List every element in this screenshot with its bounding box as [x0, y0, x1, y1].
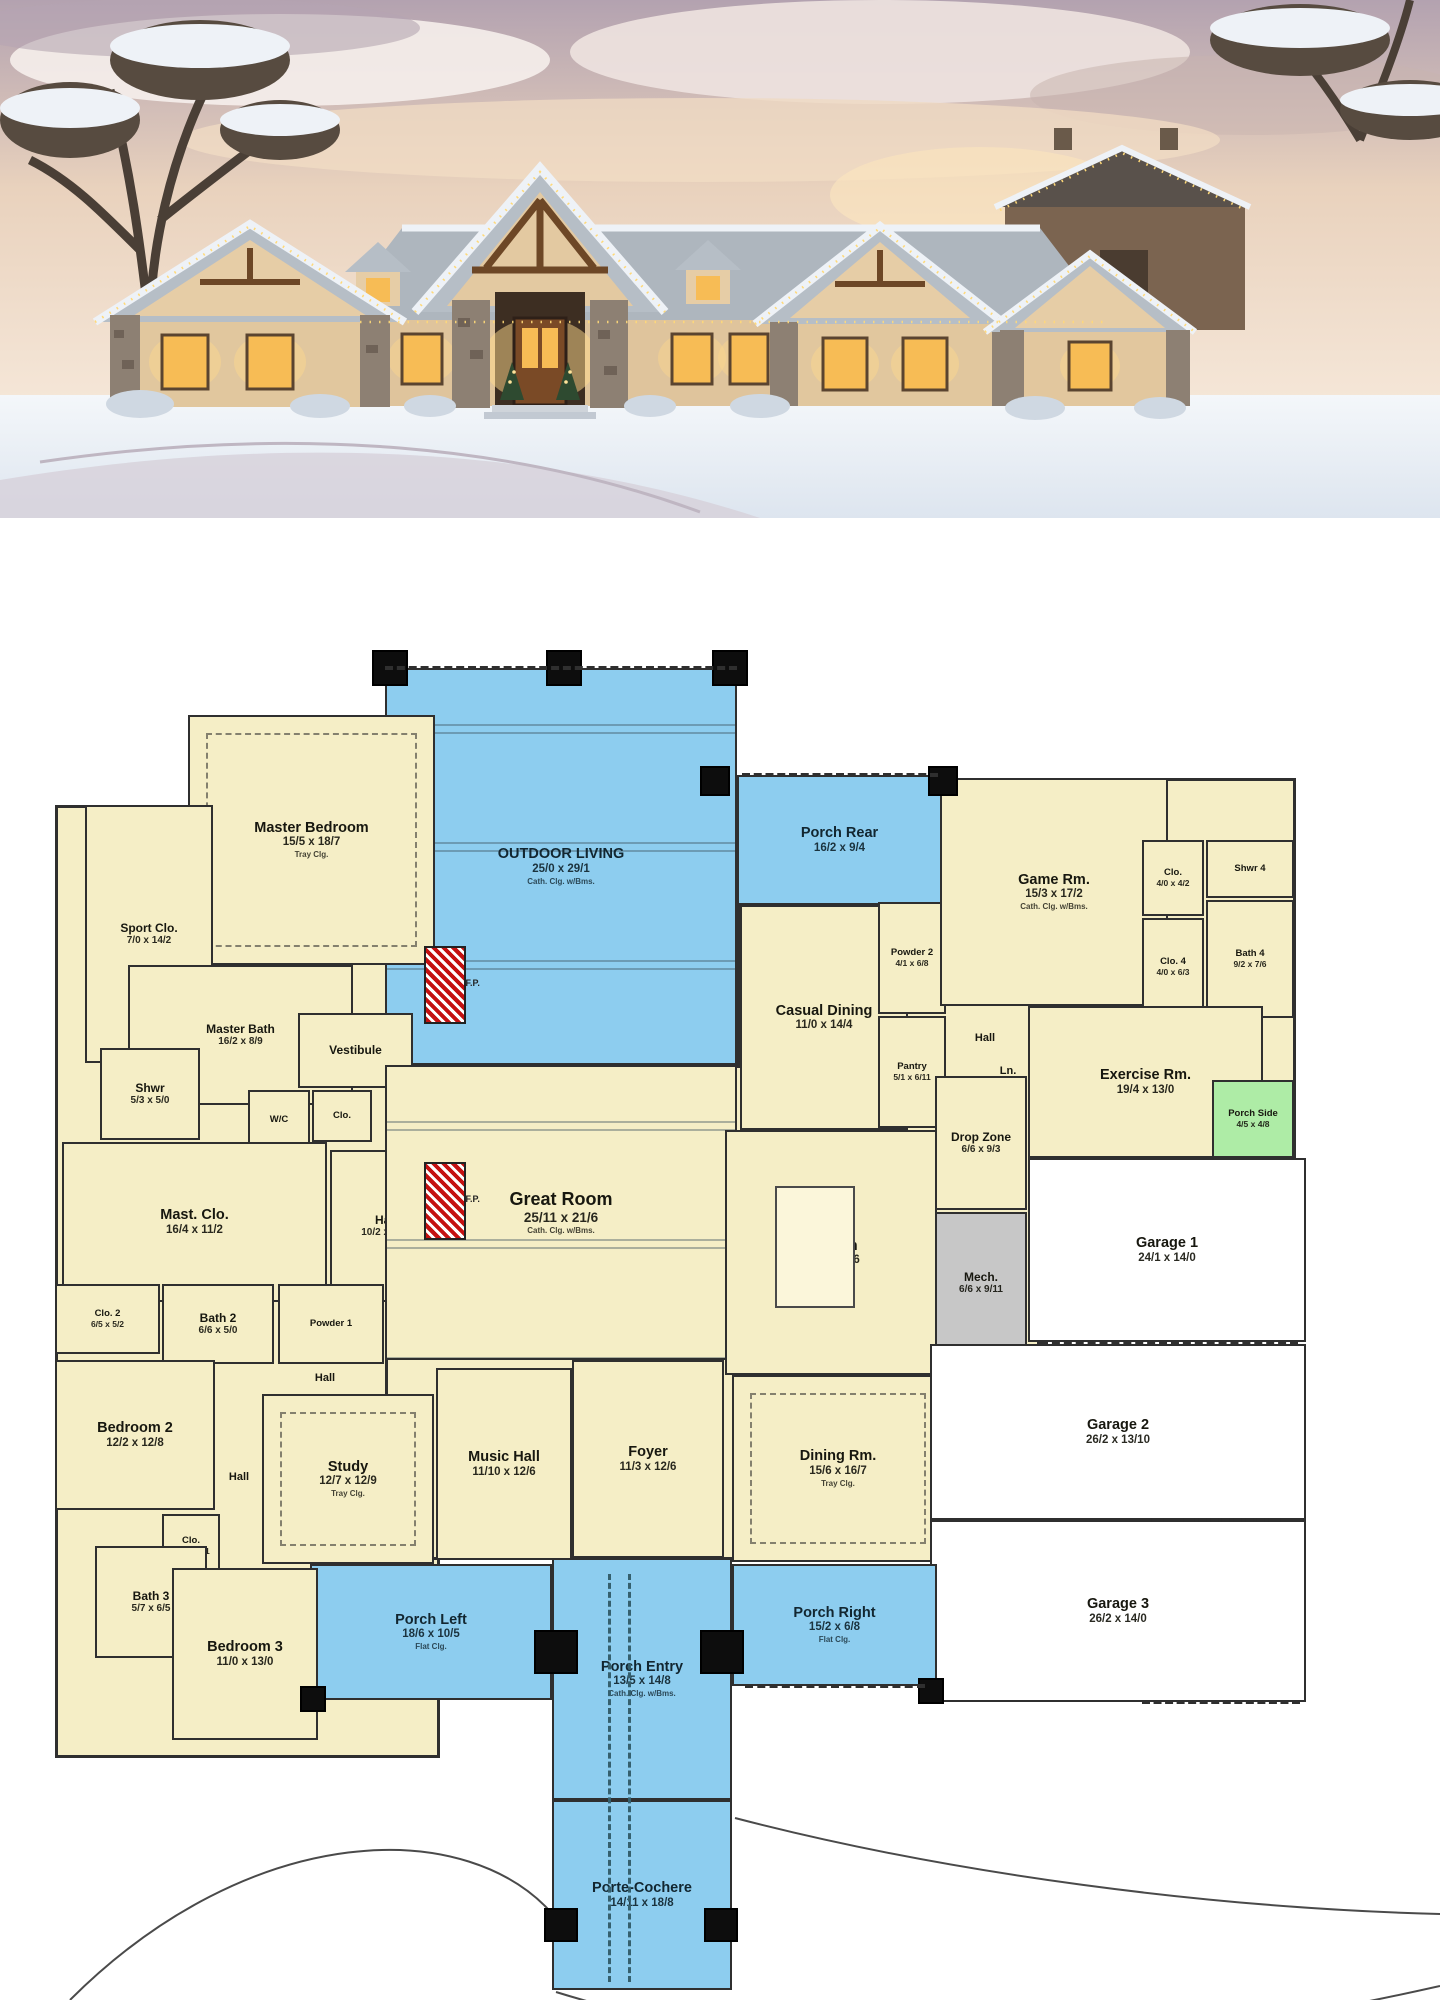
room-dimensions: 4/5 x 4/8: [1236, 1120, 1269, 1130]
fireplace-label: F.P.: [466, 1194, 480, 1204]
porch-post: [700, 1630, 744, 1674]
room-dimensions: 13/5 x 14/8: [613, 1675, 671, 1688]
stone-column-right: [590, 300, 628, 408]
room-name: Vestibule: [329, 1044, 382, 1057]
room-porch-side: Porch Side4/5 x 4/8: [1212, 1080, 1294, 1158]
room-dimensions: 4/0 x 6/3: [1156, 968, 1189, 978]
room-bedroom-3: Bedroom 311/0 x 13/0: [172, 1568, 318, 1740]
room-name: Drop Zone: [951, 1131, 1011, 1144]
room-name: Foyer: [628, 1444, 668, 1460]
porch-post: [928, 766, 958, 796]
room-dimensions: 5/3 x 5/0: [131, 1095, 170, 1106]
room-ceiling-note: Cath. Clg. w/Bms.: [1020, 903, 1088, 912]
exterior-photo-art: [0, 0, 1440, 518]
garage-door-dash: [742, 773, 938, 777]
room-dimensions: 6/5 x 5/2: [91, 1320, 124, 1330]
room-dimensions: 14/11 x 18/8: [610, 1897, 673, 1910]
porch-post: [544, 1908, 578, 1942]
room-dining-rm: Dining Rm.15/6 x 16/7Tray Clg.: [732, 1375, 944, 1562]
room-name: Porch Right: [793, 1605, 875, 1621]
room-name: Garage 3: [1087, 1596, 1149, 1612]
room-dimensions: 25/11 x 21/6: [524, 1210, 598, 1225]
room-name: Dining Rm.: [800, 1448, 877, 1464]
room-dimensions: 12/2 x 12/8: [106, 1437, 164, 1450]
room-dimensions: 4/1 x 6/8: [895, 959, 928, 969]
room-game-rm: Game Rm.15/3 x 17/2Cath. Clg. w/Bms.: [940, 778, 1168, 1006]
fireplace-icon: F.P.: [424, 1162, 466, 1240]
room-name: Garage 1: [1136, 1235, 1198, 1251]
room-name: Powder 1: [310, 1319, 352, 1330]
room-porch-entry: Porch Entry13/5 x 14/8Cath. Clg. w/Bms.: [552, 1558, 732, 1800]
room-dimensions: 5/7 x 6/5: [132, 1603, 171, 1614]
room-hall-kitchen: Hall: [952, 1018, 1018, 1058]
porch-post: [704, 1908, 738, 1942]
room-name: Game Rm.: [1018, 872, 1090, 888]
porch-post: [300, 1686, 326, 1712]
room-name: Casual Dining: [776, 1003, 873, 1019]
garage-door-dash: [385, 666, 737, 670]
room-garage-2: Garage 226/2 x 13/10: [930, 1344, 1306, 1520]
room-dimensions: 6/6 x 5/0: [199, 1325, 238, 1336]
fireplace-label: F.P.: [466, 978, 480, 988]
room-dimensions: 6/6 x 9/11: [959, 1284, 1003, 1295]
room-name: Mech.: [964, 1271, 998, 1284]
room-name: Hall: [975, 1032, 995, 1044]
room-name: Bath 3: [133, 1590, 170, 1603]
room-name: Clo.: [182, 1536, 200, 1547]
room-name: Hall: [315, 1372, 335, 1384]
room-porch-left: Porch Left18/6 x 10/5Flat Clg.: [310, 1564, 552, 1700]
kitchen-island: [775, 1186, 855, 1308]
room-name: Study: [328, 1459, 368, 1475]
garage-door-dash: [1140, 1518, 1300, 1522]
room-music-hall: Music Hall11/10 x 12/6: [436, 1368, 572, 1560]
room-name: Clo.: [333, 1111, 351, 1122]
room-dimensions: 7/0 x 14/2: [127, 935, 171, 946]
room-name: Clo. 4: [1160, 957, 1186, 968]
room-name: Great Room: [509, 1189, 612, 1209]
garage-door-dash: [745, 1684, 925, 1688]
room-garage-1: Garage 124/1 x 14/0: [1028, 1158, 1306, 1342]
room-dimensions: 16/4 x 11/2: [166, 1224, 223, 1237]
room-bath-4: Bath 49/2 x 7/6: [1206, 900, 1294, 1018]
room-wc: W/C: [248, 1090, 310, 1150]
room-dimensions: 15/5 x 18/7: [283, 836, 341, 849]
room-study: Study12/7 x 12/9Tray Clg.: [262, 1394, 434, 1564]
room-dimensions: 18/6 x 10/5: [402, 1628, 460, 1641]
room-name: OUTDOOR LIVING: [498, 846, 624, 862]
porch-post: [534, 1630, 578, 1674]
room-hall-bed2: Hall: [208, 1456, 270, 1498]
room-porte-cochere: Porte-Cochere14/11 x 18/8: [552, 1800, 732, 1990]
room-name: Master Bath: [206, 1023, 275, 1036]
room-ceiling-note: Flat Clg.: [415, 1643, 447, 1652]
room-dimensions: 25/0 x 29/1: [532, 863, 590, 876]
room-clo-game: Clo.4/0 x 4/2: [1142, 840, 1204, 916]
room-mast-clo: Mast. Clo.16/4 x 11/2: [62, 1142, 327, 1302]
room-powder-2: Powder 24/1 x 6/8: [878, 902, 946, 1014]
room-master-bedroom: Master Bedroom15/5 x 18/7Tray Clg.: [188, 715, 435, 965]
room-name: Hall: [229, 1471, 249, 1483]
exterior-photo: [0, 0, 1440, 518]
room-dimensions: 15/3 x 17/2: [1025, 888, 1083, 901]
room-name: Bedroom 3: [207, 1639, 283, 1655]
room-name: Shwr: [135, 1082, 164, 1095]
room-mech: Mech.6/6 x 9/11: [935, 1212, 1027, 1354]
room-clo-2: Clo. 26/5 x 5/2: [55, 1284, 160, 1354]
room-dimensions: 12/7 x 12/9: [319, 1475, 377, 1488]
room-name: W/C: [270, 1115, 288, 1126]
drive-centerline-dash: [608, 1574, 611, 1982]
room-name: Bath 2: [200, 1312, 237, 1325]
room-ceiling-note: Flat Clg.: [819, 1636, 851, 1645]
room-dimensions: 15/2 x 6/8: [809, 1621, 860, 1634]
room-name: Shwr 4: [1234, 864, 1265, 875]
room-name: Bedroom 2: [97, 1420, 173, 1436]
room-drop-zone: Drop Zone6/6 x 9/3: [935, 1076, 1027, 1210]
room-dimensions: 24/1 x 14/0: [1138, 1252, 1196, 1265]
room-dimensions: 11/0 x 14/4: [796, 1019, 853, 1032]
room-dimensions: 15/6 x 16/7: [809, 1465, 867, 1478]
room-name: Clo.: [1164, 868, 1182, 879]
floor-plan: OUTDOOR LIVING25/0 x 29/1Cath. Clg. w/Bm…: [0, 518, 1440, 2000]
room-dimensions: 9/2 x 7/6: [1233, 960, 1266, 970]
room-name: Pantry: [897, 1062, 927, 1073]
room-name: Bath 4: [1235, 949, 1264, 960]
room-ceiling-note: Cath. Clg. w/Bms.: [527, 878, 595, 887]
room-name: Garage 2: [1087, 1417, 1149, 1433]
room-dimensions: 16/2 x 9/4: [814, 842, 865, 855]
room-dimensions: 6/6 x 9/3: [962, 1144, 1001, 1155]
room-dimensions: 11/0 x 13/0: [217, 1656, 274, 1669]
entry-door: [514, 318, 566, 405]
room-powder-1: Powder 1: [278, 1284, 384, 1364]
room-name: Exercise Rm.: [1100, 1067, 1191, 1083]
room-dimensions: 26/2 x 13/10: [1086, 1434, 1150, 1447]
room-ceiling-note: Tray Clg.: [331, 1490, 365, 1499]
room-name: Master Bedroom: [254, 820, 368, 836]
room-name: Mast. Clo.: [160, 1207, 228, 1223]
room-dimensions: 4/0 x 4/2: [1156, 879, 1189, 889]
porch-post: [918, 1678, 944, 1704]
room-garage-3: Garage 326/2 x 14/0: [930, 1520, 1306, 1702]
room-name: Porch Left: [395, 1612, 467, 1628]
room-ceiling-note: Tray Clg.: [821, 1480, 855, 1489]
room-shwr: Shwr5/3 x 5/0: [100, 1048, 200, 1140]
room-dimensions: 11/10 x 12/6: [472, 1466, 535, 1479]
room-name: Porch Entry: [601, 1659, 683, 1675]
room-ceiling-note: Cath. Clg. w/Bms.: [608, 1690, 676, 1699]
room-dimensions: 11/3 x 12/6: [620, 1461, 677, 1474]
room-name: Clo. 2: [95, 1309, 121, 1320]
room-ceiling-note: Cath. Clg. w/Bms.: [527, 1227, 595, 1236]
fireplace-icon: F.P.: [424, 946, 466, 1024]
room-name: Powder 2: [891, 948, 933, 959]
room-name: Porch Rear: [801, 825, 878, 841]
garage-door-dash: [1040, 1340, 1298, 1344]
room-dimensions: 26/2 x 14/0: [1089, 1613, 1147, 1626]
room-dimensions: 16/2 x 8/9: [218, 1036, 262, 1047]
room-ceiling-note: Tray Clg.: [295, 851, 329, 860]
room-porch-right: Porch Right15/2 x 6/8Flat Clg.: [732, 1564, 937, 1686]
room-bath-2: Bath 26/6 x 5/0: [162, 1284, 274, 1364]
room-name: Porch Side: [1228, 1109, 1278, 1120]
room-bedroom-2: Bedroom 212/2 x 12/8: [55, 1360, 215, 1510]
room-name: Sport Clo.: [120, 922, 177, 935]
room-shwr-4: Shwr 4: [1206, 840, 1294, 898]
room-name: Music Hall: [468, 1449, 540, 1465]
room-clo-wc: Clo.: [312, 1090, 372, 1142]
porch-post: [700, 766, 730, 796]
room-porch-rear: Porch Rear16/2 x 9/4: [737, 775, 942, 905]
drive-centerline-dash: [628, 1574, 631, 1982]
room-foyer: Foyer11/3 x 12/6: [572, 1360, 724, 1558]
room-dimensions: 5/1 x 6/11: [893, 1073, 930, 1083]
room-clo-4: Clo. 44/0 x 6/3: [1142, 918, 1204, 1016]
room-dimensions: 19/4 x 13/0: [1117, 1084, 1175, 1097]
garage-door-dash: [1142, 1700, 1300, 1704]
